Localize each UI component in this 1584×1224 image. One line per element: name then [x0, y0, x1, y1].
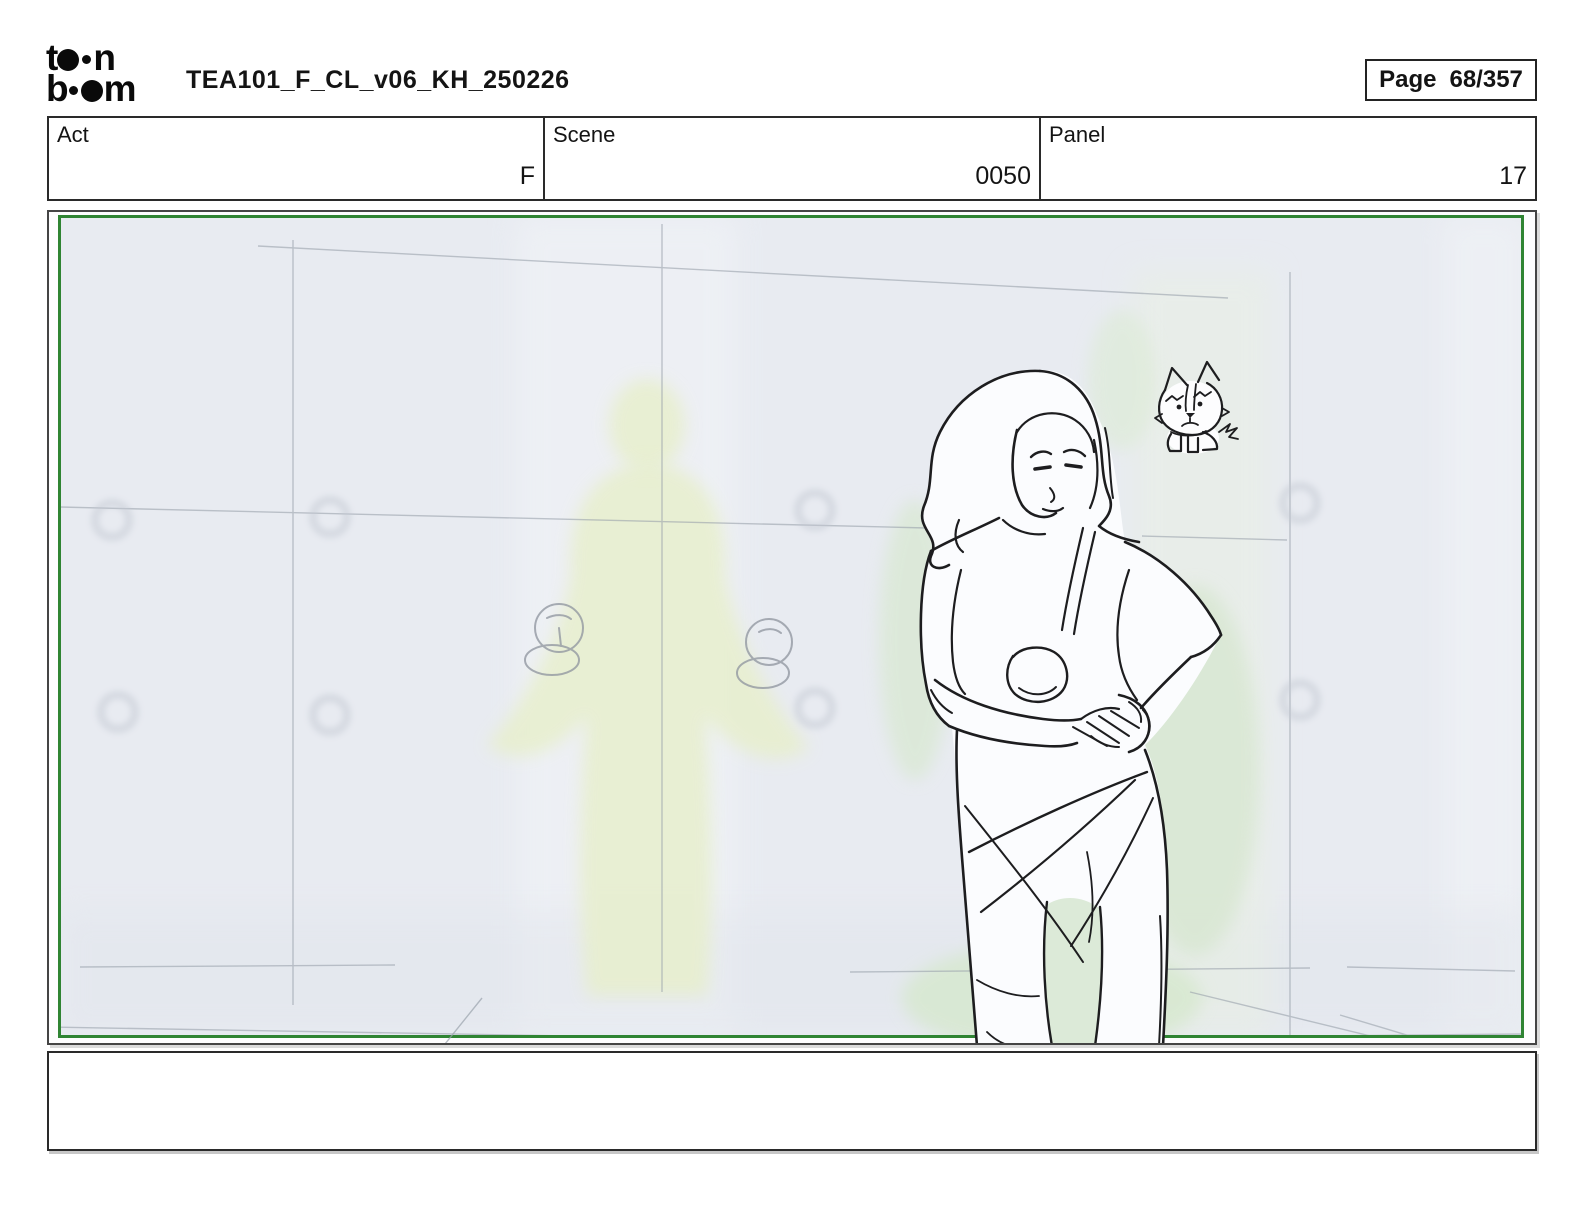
storyboard-panel — [47, 210, 1537, 1045]
logo-dot-icon — [81, 80, 103, 102]
logo-letter: b — [46, 70, 67, 107]
storyboard-drawing — [47, 210, 1537, 1045]
panel-cell: Panel 17 — [1039, 118, 1535, 199]
logo-letter: m — [104, 70, 135, 107]
scene-cell: Scene 0050 — [543, 118, 1039, 199]
panel-label: Panel — [1049, 122, 1527, 148]
scene-value: 0050 — [975, 162, 1031, 193]
logo-row-bottom: b m — [46, 75, 176, 106]
act-value: F — [520, 162, 535, 193]
project-title: TEA101_F_CL_v06_KH_250226 — [186, 66, 570, 95]
act-label: Act — [57, 122, 535, 148]
scene-label: Scene — [553, 122, 1031, 148]
page-label: Page — [1379, 66, 1436, 94]
page-value: 68/357 — [1449, 66, 1522, 94]
logo-dot-icon — [82, 55, 91, 64]
page-number-box: Page 68/357 — [1365, 59, 1537, 101]
toonboom-logo: t n b m — [46, 44, 176, 106]
storyboard-page: t n b m TEA101_F_CL_v06_KH_250226 Page 6… — [0, 0, 1584, 1224]
panel-value: 17 — [1499, 162, 1527, 193]
logo-dot-icon — [69, 86, 78, 95]
act-cell: Act F — [49, 118, 543, 199]
info-table: Act F Scene 0050 Panel 17 — [47, 116, 1537, 201]
caption-box — [47, 1051, 1537, 1151]
